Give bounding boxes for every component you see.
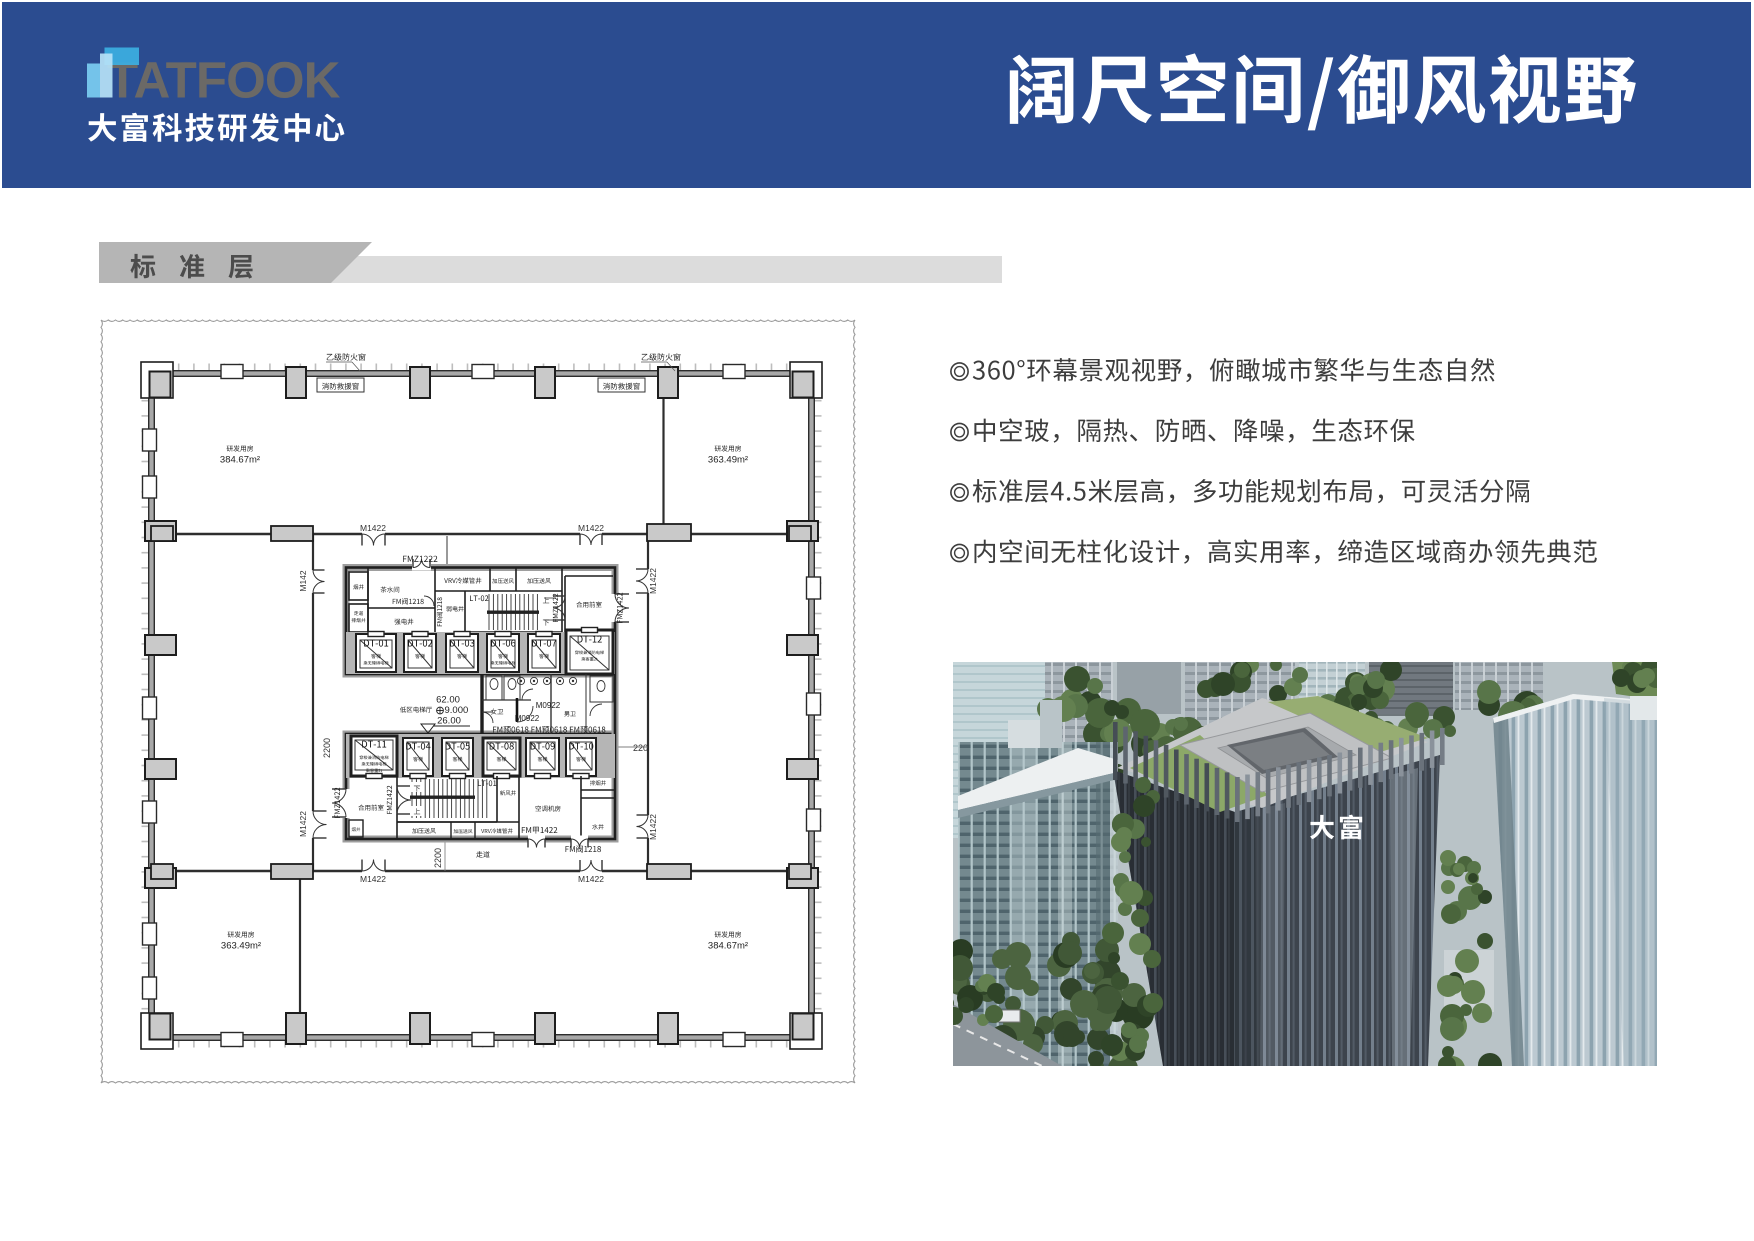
svg-text:M1422: M1422 — [648, 814, 658, 840]
svg-text:363.49m²: 363.49m² — [708, 455, 748, 466]
svg-text:M1422: M1422 — [578, 874, 604, 884]
svg-text:M1422: M1422 — [360, 874, 386, 884]
svg-text:2200: 2200 — [433, 848, 443, 868]
svg-text:M0922: M0922 — [536, 701, 561, 710]
svg-text:384.67m²: 384.67m² — [220, 455, 260, 466]
svg-text:384.67m²: 384.67m² — [708, 941, 748, 952]
svg-text:2200: 2200 — [322, 738, 332, 758]
svg-text:62.00: 62.00 — [436, 695, 460, 706]
svg-text:9.000: 9.000 — [445, 705, 469, 716]
svg-text:M1422: M1422 — [298, 811, 308, 837]
svg-text:M1422: M1422 — [360, 523, 386, 533]
svg-text:26.00: 26.00 — [437, 716, 461, 727]
svg-text:TATFOOK: TATFOOK — [107, 52, 341, 109]
svg-text:363.49m²: 363.49m² — [221, 941, 261, 952]
svg-text:M1422: M1422 — [648, 568, 658, 594]
svg-text:M142: M142 — [298, 570, 308, 592]
svg-text:M1422: M1422 — [578, 523, 604, 533]
svg-text:220: 220 — [633, 743, 648, 753]
